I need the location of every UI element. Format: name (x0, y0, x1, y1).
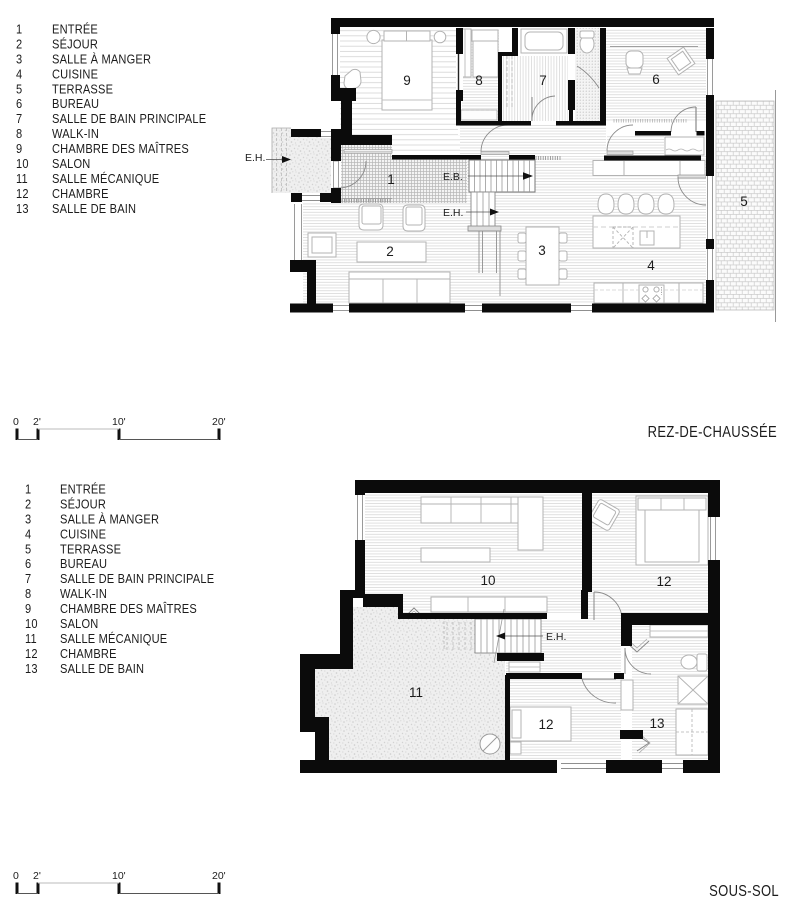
svg-text:11: 11 (25, 631, 37, 646)
svg-text:10: 10 (16, 156, 29, 171)
svg-text:11: 11 (409, 685, 423, 700)
svg-text:CHAMBRE DES MAÎTRES: CHAMBRE DES MAÎTRES (60, 600, 197, 616)
svg-text:E.H.: E.H. (443, 207, 463, 219)
svg-text:SALON: SALON (60, 616, 98, 631)
svg-text:CHAMBRE: CHAMBRE (60, 646, 117, 661)
svg-text:8: 8 (475, 73, 483, 88)
svg-text:7: 7 (539, 73, 547, 88)
svg-text:REZ-DE-CHAUSSÉE: REZ-DE-CHAUSSÉE (648, 423, 777, 441)
svg-text:SALLE DE BAIN PRINCIPALE: SALLE DE BAIN PRINCIPALE (60, 572, 214, 587)
svg-text:13: 13 (16, 201, 29, 216)
svg-text:8: 8 (16, 126, 23, 141)
svg-text:10: 10 (480, 573, 495, 588)
svg-text:11: 11 (16, 171, 28, 186)
svg-text:SALLE À MANGER: SALLE À MANGER (52, 51, 151, 67)
svg-text:4: 4 (25, 527, 32, 542)
svg-text:SALLE MÉCANIQUE: SALLE MÉCANIQUE (52, 170, 159, 186)
svg-text:SÉJOUR: SÉJOUR (52, 36, 98, 52)
svg-text:3: 3 (16, 52, 23, 67)
svg-text:1: 1 (387, 172, 395, 187)
svg-text:0: 0 (13, 870, 19, 882)
svg-text:5: 5 (740, 194, 748, 209)
svg-text:9: 9 (25, 601, 32, 616)
svg-text:10': 10' (112, 870, 126, 882)
svg-text:10': 10' (112, 416, 126, 428)
svg-text:9: 9 (16, 141, 23, 156)
svg-text:WALK-IN: WALK-IN (52, 126, 99, 141)
svg-text:3: 3 (538, 243, 546, 258)
svg-text:10: 10 (25, 616, 38, 631)
svg-text:2': 2' (33, 416, 41, 428)
svg-text:SALLE À MANGER: SALLE À MANGER (60, 511, 159, 527)
svg-text:SALLE DE BAIN: SALLE DE BAIN (52, 201, 136, 216)
svg-text:2: 2 (386, 244, 394, 259)
svg-text:SALLE MÉCANIQUE: SALLE MÉCANIQUE (60, 630, 167, 646)
svg-text:WALK-IN: WALK-IN (60, 586, 107, 601)
svg-text:3: 3 (25, 512, 32, 527)
svg-text:CUISINE: CUISINE (60, 527, 106, 542)
svg-text:BUREAU: BUREAU (52, 97, 99, 112)
svg-text:12: 12 (25, 646, 38, 661)
svg-text:ENTRÉE: ENTRÉE (52, 21, 98, 37)
svg-text:13: 13 (25, 661, 38, 676)
svg-text:TERRASSE: TERRASSE (52, 82, 113, 97)
svg-text:SOUS-SOL: SOUS-SOL (709, 883, 779, 900)
svg-text:12: 12 (16, 186, 29, 201)
svg-text:2: 2 (25, 497, 31, 512)
svg-text:6: 6 (652, 72, 660, 87)
svg-text:E.B.: E.B. (443, 171, 463, 183)
svg-text:1: 1 (16, 22, 23, 37)
svg-text:13: 13 (649, 716, 664, 731)
svg-text:ENTRÉE: ENTRÉE (60, 481, 106, 497)
svg-text:4: 4 (647, 258, 655, 273)
svg-text:CUISINE: CUISINE (52, 67, 98, 82)
svg-text:5: 5 (25, 542, 32, 557)
svg-text:12: 12 (538, 717, 553, 732)
svg-text:7: 7 (16, 112, 22, 127)
svg-text:8: 8 (25, 586, 32, 601)
svg-text:2': 2' (33, 870, 41, 882)
svg-text:20': 20' (212, 416, 226, 428)
svg-text:CHAMBRE DES MAÎTRES: CHAMBRE DES MAÎTRES (52, 140, 189, 156)
svg-text:6: 6 (25, 557, 32, 572)
svg-text:E.H.: E.H. (546, 631, 566, 643)
svg-text:TERRASSE: TERRASSE (60, 542, 121, 557)
svg-text:CHAMBRE: CHAMBRE (52, 186, 109, 201)
svg-text:7: 7 (25, 572, 31, 587)
svg-text:5: 5 (16, 82, 23, 97)
svg-text:SALLE DE BAIN PRINCIPALE: SALLE DE BAIN PRINCIPALE (52, 112, 206, 127)
svg-text:9: 9 (403, 73, 411, 88)
svg-text:BUREAU: BUREAU (60, 557, 107, 572)
svg-text:E.H.: E.H. (245, 152, 265, 164)
svg-text:SÉJOUR: SÉJOUR (60, 496, 106, 512)
svg-text:2: 2 (16, 37, 22, 52)
svg-text:SALON: SALON (52, 156, 90, 171)
svg-text:0: 0 (13, 416, 19, 428)
svg-text:6: 6 (16, 97, 23, 112)
svg-text:1: 1 (25, 482, 32, 497)
svg-text:SALLE DE BAIN: SALLE DE BAIN (60, 661, 144, 676)
svg-text:20': 20' (212, 870, 226, 882)
svg-text:12: 12 (656, 574, 671, 589)
svg-text:4: 4 (16, 67, 23, 82)
